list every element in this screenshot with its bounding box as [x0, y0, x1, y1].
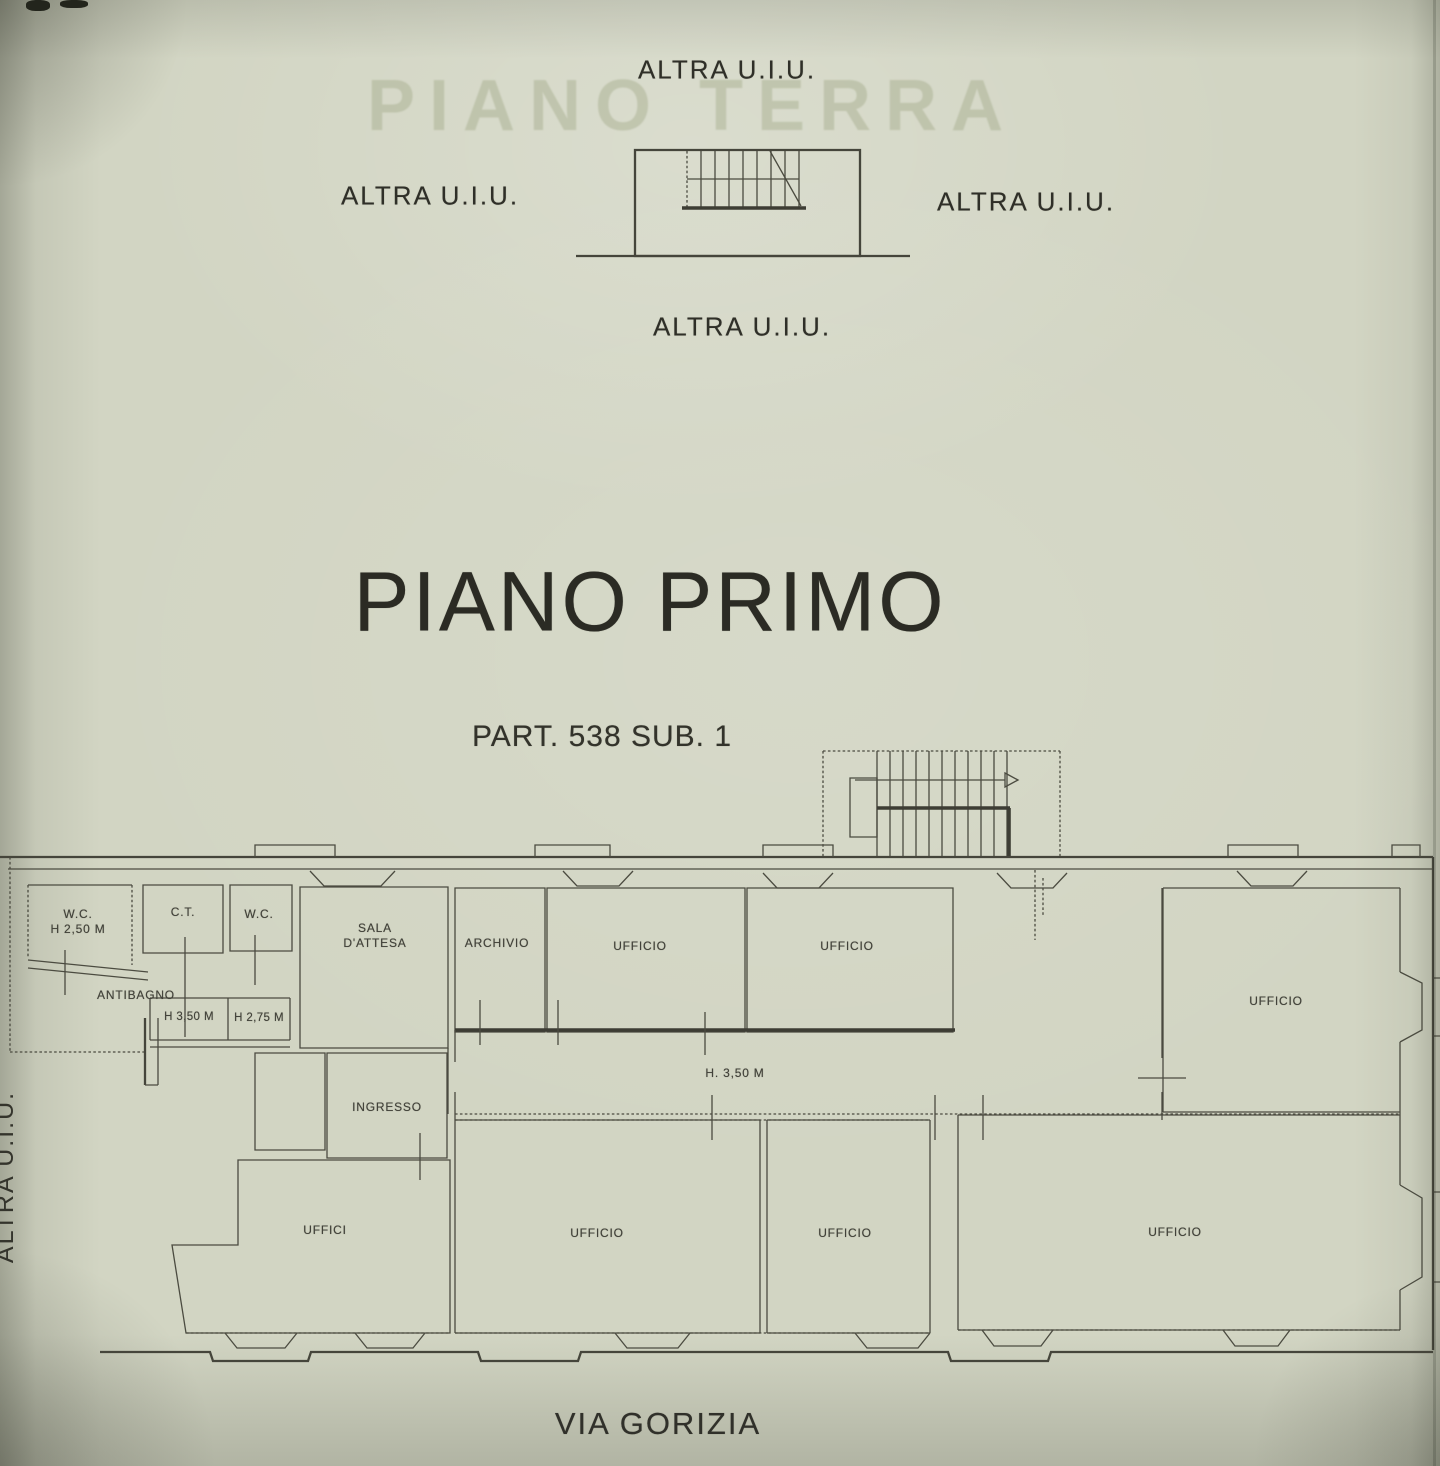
- room-label-wc-1-name: W.C.: [63, 907, 92, 921]
- context-mini-plan: [576, 150, 910, 256]
- room-label-sala-line1: SALA: [358, 921, 392, 935]
- parcel-reference: PART. 538 SUB. 1: [472, 720, 732, 754]
- room-label-archivio: ARCHIVIO: [465, 936, 529, 950]
- room-label-wc-1: W.C. H 2,50 M: [50, 907, 105, 937]
- room-label-ufficio-bottom-1: UFFICIO: [570, 1226, 624, 1240]
- adjacent-label-bottom: ALTRA U.I.U.: [653, 312, 831, 343]
- room-label-ct: C.T.: [171, 905, 196, 919]
- room-label-antibagno: ANTIBAGNO: [97, 988, 175, 1002]
- room-label-h-275: H 2,75 M: [234, 1012, 284, 1024]
- room-label-ufficio-top-2: UFFICIO: [820, 939, 874, 953]
- staircase-drawing: [823, 751, 1060, 858]
- room-label-h-350: H 3,50 M: [164, 1011, 214, 1023]
- room-label-wc-2: W.C.: [244, 907, 273, 921]
- room-label-uffici: UFFICI: [303, 1223, 346, 1237]
- room-label-ufficio-top-1: UFFICIO: [613, 939, 667, 953]
- adjacent-label-side-vertical: ALTRA U.I.U.: [0, 1067, 21, 1287]
- page-title: PIANO PRIMO: [353, 554, 946, 651]
- main-plan-walls: [0, 845, 1440, 1361]
- room-label-ufficio-bottom-2: UFFICIO: [818, 1226, 872, 1240]
- room-label-ufficio-bottom-3: UFFICIO: [1148, 1225, 1202, 1239]
- street-name-label: VIA GORIZIA: [555, 1406, 761, 1442]
- room-label-wc-1-height: H 2,50 M: [50, 922, 105, 936]
- adjacent-label-top: ALTRA U.I.U.: [638, 55, 816, 86]
- scanned-floorplan-page: PIANO TERRA: [0, 0, 1440, 1466]
- room-label-sala-dattesa: SALA D'ATTESA: [343, 921, 406, 951]
- room-label-ingresso: INGRESSO: [352, 1100, 422, 1114]
- room-label-sala-line2: D'ATTESA: [343, 936, 406, 950]
- room-label-ufficio-right: UFFICIO: [1249, 994, 1303, 1008]
- adjacent-label-right: ALTRA U.I.U.: [937, 187, 1115, 218]
- adjacent-label-left: ALTRA U.I.U.: [341, 181, 519, 212]
- corridor-height-label: H. 3,50 M: [705, 1066, 764, 1080]
